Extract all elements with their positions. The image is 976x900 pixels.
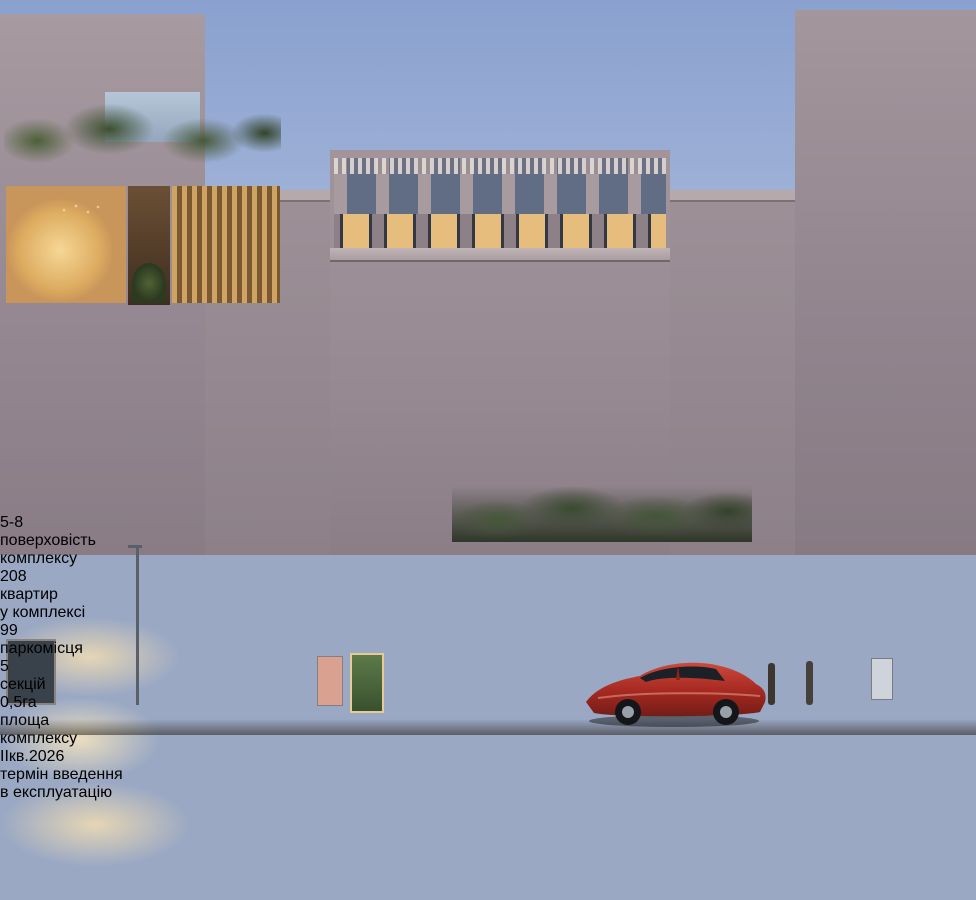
lit-window xyxy=(330,402,356,438)
stat-label: паркомісця xyxy=(0,640,123,658)
red-car xyxy=(578,650,768,730)
stat-value: IIкв.2026 xyxy=(0,748,123,766)
indoor-plant xyxy=(132,263,166,303)
cornice xyxy=(330,248,670,260)
rooftop-pergola-level xyxy=(334,158,666,214)
stat-label-line: поверховість xyxy=(0,532,123,550)
stat-value: 0,5га xyxy=(0,694,123,712)
stat-label: термін введенняв експлуатацію xyxy=(0,766,123,802)
stat-big: II xyxy=(0,748,9,765)
lit-window xyxy=(330,330,356,366)
tree-trunk xyxy=(0,90,62,150)
stat-label-line: у комплексі xyxy=(0,604,123,622)
stat-label-line: квартир xyxy=(0,586,123,604)
stat-label-line: термін введення xyxy=(0,766,123,784)
lit-window xyxy=(330,258,356,294)
wood-louver-wall xyxy=(172,186,280,303)
stat-value: 208 xyxy=(0,568,123,586)
stat-apartments: 208 квартиру комплексі xyxy=(0,568,123,622)
car-rim xyxy=(720,706,732,718)
stat-big: 99 xyxy=(0,622,18,639)
car-rim xyxy=(622,706,634,718)
stat-value: 5-8 xyxy=(0,514,123,532)
stat-big2: 2026 xyxy=(29,748,65,765)
lit-window xyxy=(330,366,356,402)
stat-label-line: в експлуатацію xyxy=(0,784,123,802)
stat-big: 5-8 xyxy=(0,514,23,531)
sidewalk xyxy=(0,702,976,742)
stat-unit: га xyxy=(22,694,36,711)
stat-value: 5 xyxy=(0,658,123,676)
retail-fascia xyxy=(0,556,976,617)
lamp-post xyxy=(136,545,139,705)
stat-label-line: паркомісця xyxy=(0,640,123,658)
stat-label: поверховістькомплексу xyxy=(0,532,123,568)
lamp-arm xyxy=(128,545,142,548)
stat-area: 0,5га площакомплексу xyxy=(0,694,123,748)
lit-window xyxy=(330,294,356,330)
attic-window-row xyxy=(334,214,666,248)
wood-terrace-band xyxy=(831,142,976,178)
stat-completion-date: IIкв.2026 термін введенняв експлуатацію xyxy=(0,748,123,802)
stat-floors: 5-8 поверховістькомплексу xyxy=(0,514,123,568)
stat-sections: 5 секцій xyxy=(0,658,123,694)
balcony-slabs xyxy=(795,10,833,555)
pavilion-green-roof xyxy=(452,486,752,542)
pergola-slats xyxy=(334,158,666,174)
stat-label-line: площа xyxy=(0,712,123,730)
stat-unit: кв. xyxy=(9,748,29,765)
tower-side-shadow xyxy=(795,10,833,555)
stat-parking: 99 паркомісця xyxy=(0,622,123,658)
tree-crown xyxy=(0,150,62,212)
building-tower-right xyxy=(795,10,976,555)
wing-cornice xyxy=(660,190,802,200)
stat-label: секцій xyxy=(0,676,123,694)
stat-big: 208 xyxy=(0,568,27,585)
topiary-tree xyxy=(0,90,62,212)
stat-label-line: комплексу xyxy=(0,730,123,748)
stat-label-line: комплексу xyxy=(0,550,123,568)
stat-label-line: секцій xyxy=(0,676,123,694)
entrance-door xyxy=(128,186,170,305)
roof-parapet xyxy=(330,150,670,158)
stats-bar: 5-8 поверховістькомплексу 208 квартиру к… xyxy=(0,514,123,802)
stat-label: площакомплексу xyxy=(0,712,123,748)
stat-big: 0,5 xyxy=(0,694,22,711)
stat-value: 99 xyxy=(0,622,123,640)
stat-big: 5 xyxy=(0,658,9,675)
stat-label: квартиру комплексі xyxy=(0,586,123,622)
residential-complex-render: PLANET ECO market CLOTHES fashion xyxy=(0,0,976,900)
